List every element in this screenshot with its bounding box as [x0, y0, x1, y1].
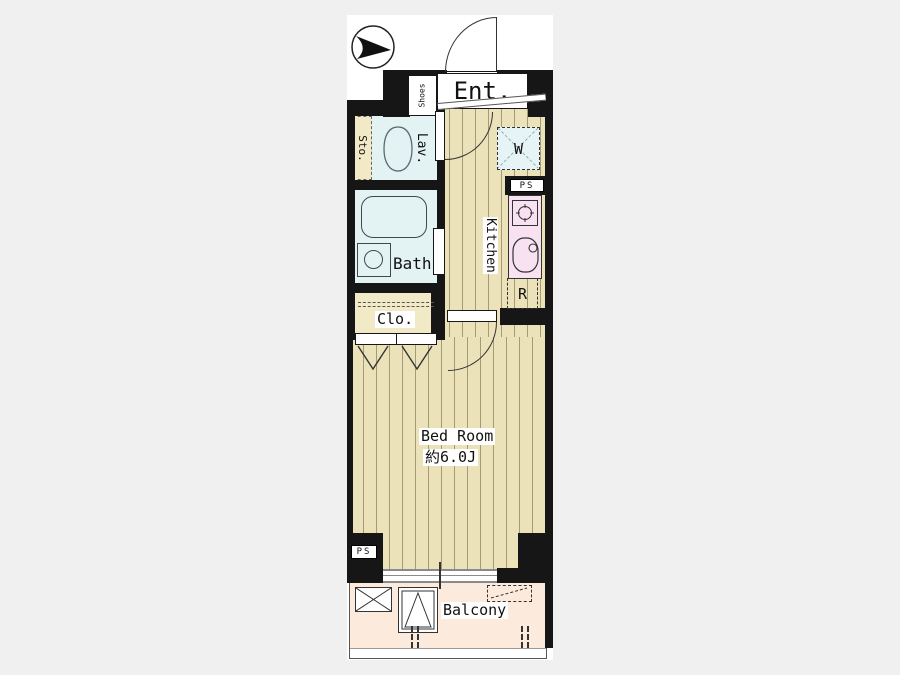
- washer-label: W: [498, 128, 539, 169]
- closet-label: Clo.: [375, 311, 415, 328]
- compass-icon: [350, 24, 396, 70]
- shoes-label: Shoes: [418, 82, 427, 108]
- kitchen-counter: [508, 195, 542, 279]
- ps-box-kitchen: PS: [510, 179, 544, 192]
- shoes-cabinet: Shoes: [408, 75, 437, 116]
- window-center-tick: [439, 562, 441, 589]
- lavatory-door-leaf: [435, 111, 445, 161]
- balcony-hatch-box-icon: [355, 587, 392, 612]
- lavatory-label: Lav.: [415, 131, 430, 164]
- page: { "page": { "background_color": "#f0f0f0…: [0, 0, 900, 675]
- closet-hanger-rail: [358, 302, 434, 307]
- washer-space: W: [497, 127, 540, 170]
- wall-bottom-segment: [497, 568, 518, 583]
- stove-icon: [512, 200, 538, 226]
- wall-hall-bedroom: [500, 308, 545, 325]
- ps-kitchen-label: PS: [520, 181, 535, 191]
- floor-plan: Shoes Ent. Lav. Sto. Bath Clo.: [347, 15, 553, 660]
- kitchen-label: Kitchen: [483, 217, 498, 274]
- closet-front-track: [355, 333, 437, 345]
- sink-icon: [511, 236, 541, 276]
- entrance-door-arc-icon: [445, 17, 497, 72]
- bedroom-size-label: 約6.0J: [423, 449, 478, 466]
- ps-box-balcony: PS: [351, 545, 377, 559]
- refrigerator-label: R: [518, 285, 527, 303]
- ps-balcony-label: PS: [357, 547, 372, 557]
- bedroom-door-leaf: [447, 310, 497, 322]
- balcony-label: Balcony: [441, 602, 508, 619]
- toilet-icon: [380, 123, 416, 175]
- pillar-bottom-right: [518, 533, 553, 583]
- washstand-icon: [357, 243, 391, 277]
- bathtub-icon: [361, 196, 427, 238]
- bath-label: Bath: [391, 255, 434, 273]
- bath-door-leaf: [433, 228, 445, 275]
- bedroom-name-label: Bed Room: [419, 428, 495, 445]
- drain-pipe-right-icon: [521, 626, 529, 648]
- balcony-slop-sink-icon: [487, 585, 532, 602]
- storage-label: Sto.: [356, 134, 369, 163]
- drain-pipe-left-icon: [411, 626, 419, 648]
- wall-left-lower: [347, 340, 353, 540]
- entrance-door-leaf: [496, 17, 498, 72]
- refrigerator-space: R: [507, 278, 538, 309]
- wall-lav-bath: [347, 180, 445, 190]
- closet-folding-doors-icon: [355, 345, 437, 372]
